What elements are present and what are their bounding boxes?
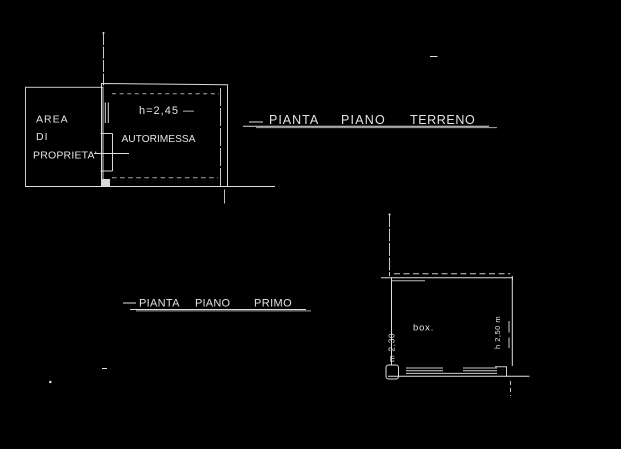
svg-text:box.: box.	[413, 323, 434, 334]
svg-text:PIANTA: PIANTA	[139, 298, 180, 310]
svg-text:TERRENO: TERRENO	[410, 113, 475, 127]
svg-text:AREA: AREA	[36, 114, 69, 126]
svg-text:PIANO: PIANO	[341, 113, 386, 127]
svg-text:AUTORIMESSA: AUTORIMESSA	[122, 134, 196, 145]
svg-text:DI: DI	[36, 131, 49, 143]
svg-text:PROPRIETA': PROPRIETA'	[33, 150, 97, 162]
svg-text:PIANO: PIANO	[195, 298, 230, 310]
svg-text:h=2,45 —: h=2,45 —	[139, 105, 195, 117]
svg-text:h 2,50 m: h 2,50 m	[493, 316, 502, 349]
svg-text:PIANTA: PIANTA	[269, 113, 319, 127]
svg-text:PRIMO: PRIMO	[254, 298, 292, 310]
svg-text:m 2,30: m 2,30	[388, 333, 397, 362]
